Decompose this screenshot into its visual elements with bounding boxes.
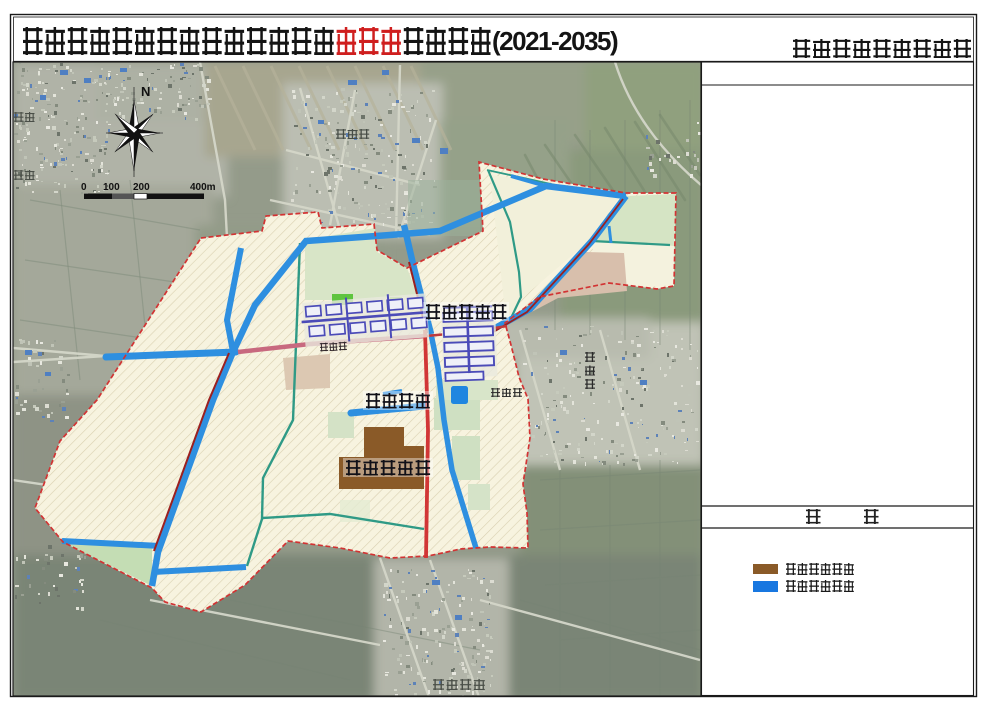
svg-text:(2021-2035): (2021-2035) <box>492 26 618 56</box>
svg-text:0: 0 <box>81 182 87 193</box>
svg-text:N: N <box>141 84 150 99</box>
svg-text:200: 200 <box>133 182 150 193</box>
svg-text:100: 100 <box>103 182 120 193</box>
svg-text:400m: 400m <box>190 182 216 193</box>
